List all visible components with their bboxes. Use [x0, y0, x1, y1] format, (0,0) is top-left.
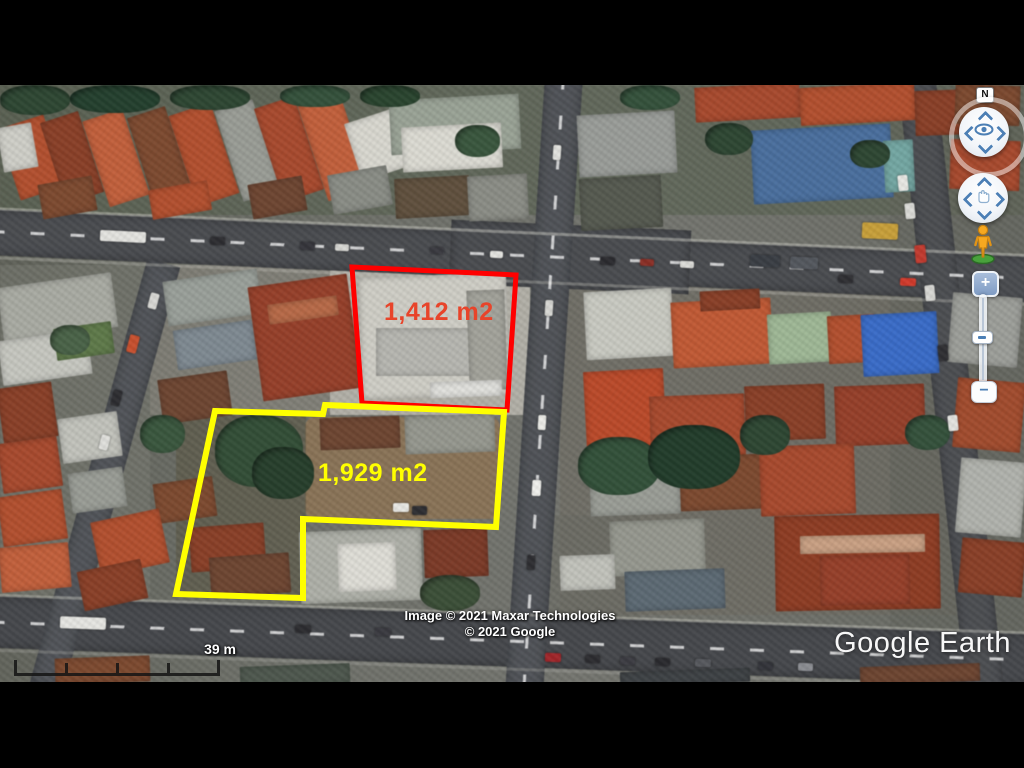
scale-tick [65, 663, 68, 673]
building-roof [700, 288, 761, 311]
building-roof [467, 173, 529, 221]
vehicle [585, 655, 600, 664]
vehicle [790, 256, 819, 269]
tree-canopy [850, 140, 890, 168]
zoom-slider-handle[interactable] [972, 331, 993, 344]
vehicle [544, 300, 553, 316]
look-joystick[interactable] [959, 107, 1009, 157]
building-roof [0, 381, 59, 443]
tree-canopy [455, 125, 500, 157]
vehicle [100, 230, 146, 243]
satellite-imagery [0, 85, 1024, 682]
building-roof [559, 554, 615, 591]
vehicle [924, 285, 936, 302]
tree-canopy [70, 85, 160, 113]
vehicle [545, 653, 561, 663]
building-roof [799, 85, 916, 126]
vehicle [904, 203, 916, 220]
vehicle [210, 237, 225, 246]
building-roof [800, 534, 925, 554]
vehicle [838, 275, 853, 284]
building-roof [0, 542, 72, 593]
vehicle [300, 242, 315, 251]
building-roof [67, 466, 127, 513]
zoom-out-button[interactable]: − [971, 381, 997, 403]
building-roof [583, 288, 674, 361]
tree-canopy [420, 575, 480, 611]
vehicle [335, 244, 349, 252]
vehicle [430, 247, 444, 255]
tree-canopy [360, 85, 420, 107]
building-roof [955, 457, 1024, 537]
vehicle [680, 261, 694, 269]
move-joystick[interactable] [958, 173, 1008, 223]
tree-canopy [578, 437, 660, 495]
zoom-in-button[interactable]: + [972, 271, 999, 297]
building-roof [820, 554, 911, 606]
building-roof [694, 85, 801, 123]
yellow-parcel-area-label: 1,929 m2 [318, 459, 428, 488]
building-roof [240, 663, 351, 682]
tree-canopy [50, 325, 90, 355]
building-roof [860, 663, 981, 682]
tree-canopy [0, 85, 70, 115]
tree-canopy [280, 85, 350, 107]
tree-canopy [620, 85, 680, 110]
hand-icon [975, 187, 991, 209]
vehicle [531, 480, 541, 497]
tree-canopy [648, 425, 740, 489]
vehicle [640, 259, 654, 267]
vehicle [412, 506, 427, 515]
look-down-arrow-icon[interactable] [978, 139, 994, 155]
vehicle [600, 257, 615, 266]
google-earth-watermark: Google Earth [834, 627, 1011, 660]
vehicle [538, 415, 547, 430]
building-roof [404, 413, 495, 454]
vehicle [862, 222, 899, 240]
vehicle [937, 345, 949, 362]
building-roof [247, 274, 362, 402]
building-roof [576, 110, 677, 177]
vehicle [900, 278, 916, 287]
scale-label: 39 m [204, 641, 236, 657]
tree-canopy [705, 123, 753, 155]
vehicle [393, 503, 409, 512]
building-roof [767, 311, 834, 364]
vehicle [655, 658, 670, 667]
building-roof [958, 537, 1024, 597]
tree-canopy [252, 447, 314, 499]
building-roof [759, 443, 856, 516]
scale-bar: 39 m [14, 641, 220, 675]
eye-icon [974, 123, 994, 141]
building-roof [0, 436, 63, 494]
building-roof [423, 528, 489, 578]
tree-canopy [740, 415, 790, 455]
vehicle [695, 659, 711, 668]
letterbox-bottom [0, 682, 1024, 768]
building-roof [337, 542, 397, 592]
vehicle [553, 145, 562, 160]
vehicle [490, 251, 503, 259]
vehicle [750, 254, 781, 267]
building-roof [609, 518, 706, 576]
attribution-line1: Image © 2021 Maxar Technologies [300, 608, 720, 624]
building-roof [57, 411, 123, 464]
building-roof [860, 311, 939, 377]
vehicle [947, 415, 959, 432]
vehicle [798, 663, 813, 672]
vehicle [60, 616, 106, 630]
scale-line [14, 673, 220, 676]
scale-tick [167, 663, 170, 673]
building-roof [319, 416, 400, 451]
attribution-line2: © 2021 Google [300, 624, 720, 640]
building-roof [394, 175, 471, 219]
red-parcel-area-label: 1,412 m2 [384, 298, 494, 327]
scale-tick [217, 660, 220, 673]
tree-canopy [170, 85, 250, 110]
tree-canopy [140, 415, 185, 453]
vehicle [758, 662, 773, 671]
building-roof [624, 568, 725, 611]
scale-tick [14, 660, 17, 673]
tree-canopy [905, 415, 950, 450]
scale-tick [116, 663, 119, 673]
vehicle [620, 657, 635, 666]
aerial-map-viewport[interactable]: 1,412 m2 1,929 m2 Image © 2021 Maxar Tec… [0, 85, 1024, 682]
building-roof [0, 489, 68, 548]
vehicle [897, 175, 909, 192]
pegman-street-view[interactable] [969, 223, 997, 265]
google-earth-window: 1,412 m2 1,929 m2 Image © 2021 Maxar Tec… [0, 0, 1024, 768]
building-roof [209, 552, 292, 597]
building-roof [430, 380, 503, 399]
vehicle [914, 244, 927, 263]
building-roof [153, 476, 218, 524]
attribution: Image © 2021 Maxar Technologies © 2021 G… [300, 608, 720, 640]
letterbox-top [0, 0, 1024, 85]
building-roof [579, 175, 664, 231]
vehicle [527, 555, 536, 570]
move-right-arrow-icon[interactable] [990, 192, 1006, 208]
